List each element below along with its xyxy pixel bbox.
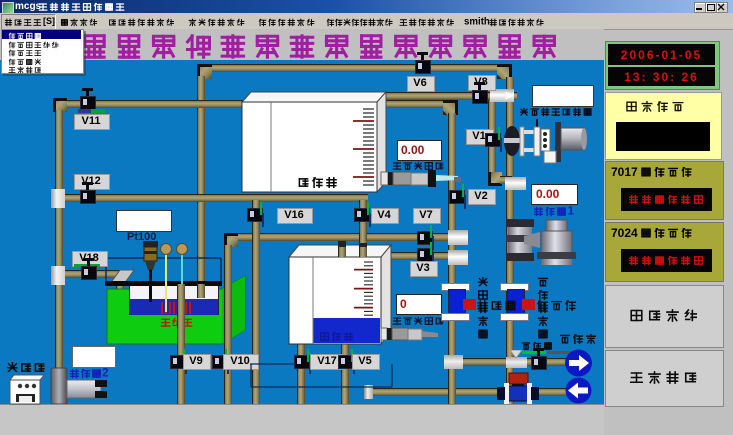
svg-text:smith: smith [464, 17, 490, 28]
svg-text:1: 1 [568, 205, 575, 218]
